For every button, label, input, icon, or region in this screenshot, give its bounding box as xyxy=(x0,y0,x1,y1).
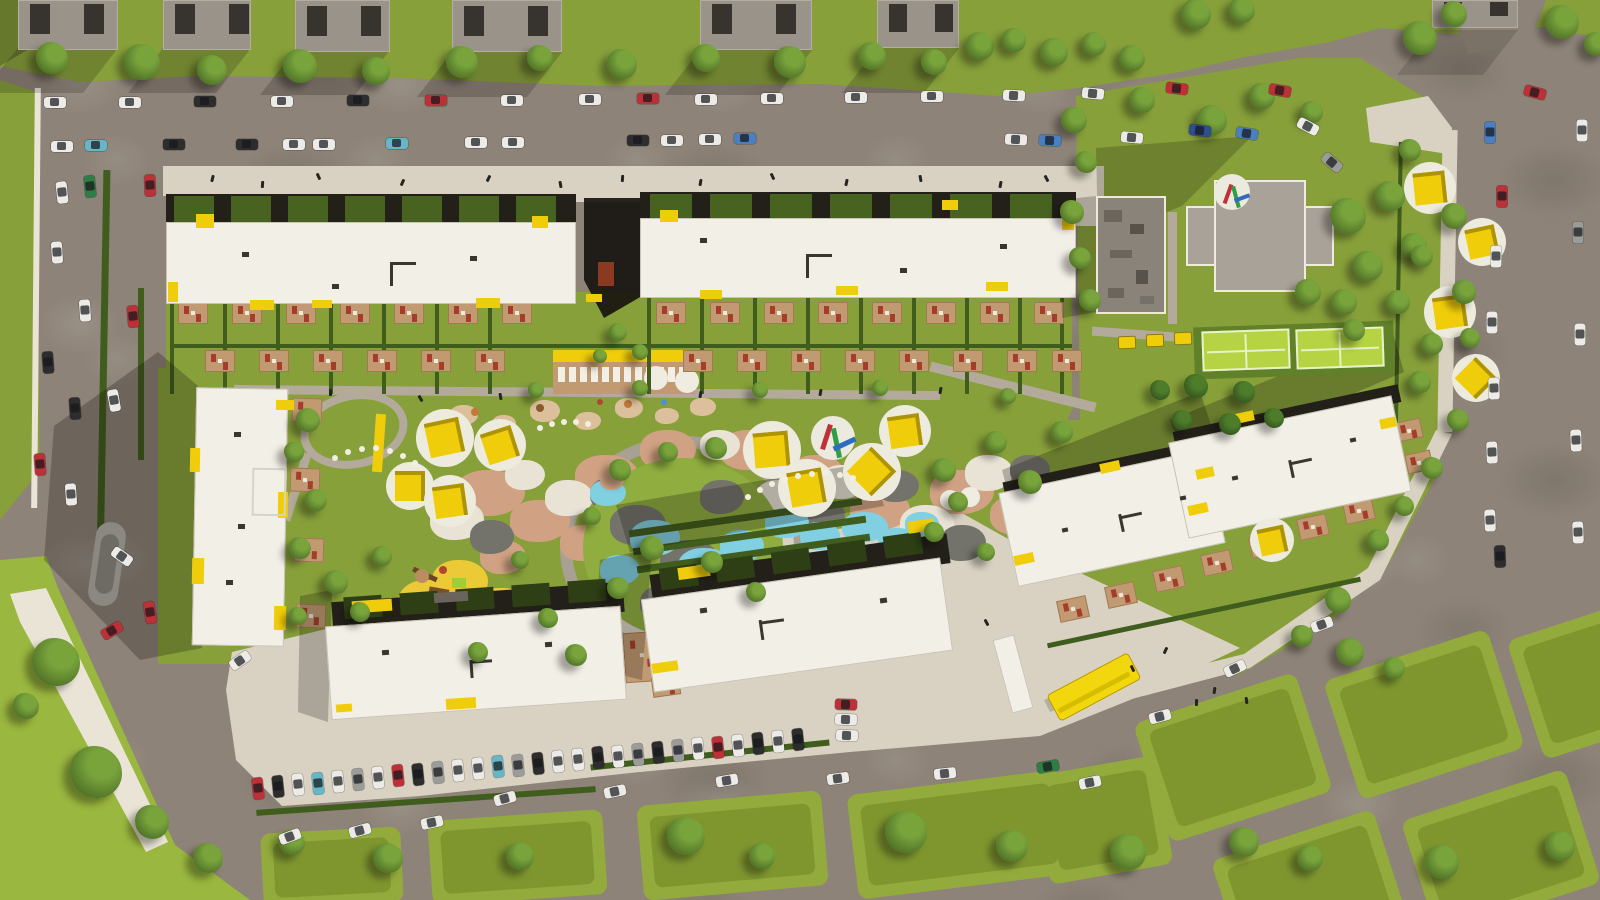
patio-furniture xyxy=(439,362,444,370)
car xyxy=(711,735,724,758)
tree xyxy=(1082,32,1106,56)
tower-building xyxy=(1216,208,1304,264)
car-window xyxy=(753,737,762,748)
tree xyxy=(632,344,648,360)
car-window xyxy=(773,735,782,746)
tree xyxy=(1264,408,1284,428)
tree xyxy=(506,842,534,870)
patio-table xyxy=(885,311,889,315)
residential-building xyxy=(196,214,214,228)
car xyxy=(283,139,305,150)
car-window xyxy=(70,402,79,412)
patio-furniture xyxy=(319,354,324,362)
car-window xyxy=(1498,191,1506,201)
car-window xyxy=(1488,446,1497,456)
roof-vent xyxy=(1490,2,1508,16)
residential-building xyxy=(382,650,389,655)
patio-furniture xyxy=(1076,608,1083,617)
tree xyxy=(296,408,320,432)
patio-furniture xyxy=(836,314,841,322)
car xyxy=(651,740,664,763)
car xyxy=(845,92,867,103)
patio xyxy=(205,350,235,372)
patio-furniture xyxy=(1172,578,1179,587)
tree xyxy=(1219,413,1241,435)
bench xyxy=(1174,332,1192,346)
residential-building xyxy=(511,583,550,608)
car xyxy=(835,713,857,725)
car-window xyxy=(373,771,382,782)
patio xyxy=(367,350,397,372)
patio-table xyxy=(831,311,835,315)
tree xyxy=(977,543,995,561)
terrace-hedge xyxy=(170,344,1072,348)
cabana xyxy=(416,409,473,466)
car-window xyxy=(667,136,677,144)
car xyxy=(1523,84,1547,100)
tree xyxy=(609,459,631,481)
patio-table xyxy=(696,359,700,363)
umbrella xyxy=(675,369,699,393)
car xyxy=(836,729,858,741)
car-window xyxy=(393,769,402,780)
stepping-stone xyxy=(549,421,555,427)
tree xyxy=(607,577,629,599)
car xyxy=(611,744,624,767)
tree xyxy=(70,746,122,798)
patio-table xyxy=(218,359,222,363)
car xyxy=(699,134,721,145)
tree xyxy=(1425,845,1459,879)
patio-furniture xyxy=(481,354,486,362)
car-window xyxy=(1529,87,1541,98)
residential-building xyxy=(567,579,606,604)
stepping-stone xyxy=(769,481,775,487)
bench xyxy=(1146,334,1164,348)
tree xyxy=(32,638,80,686)
patio-furniture xyxy=(331,362,336,370)
car-window xyxy=(573,753,582,764)
car-window xyxy=(426,817,437,827)
car-window xyxy=(721,775,732,785)
car xyxy=(501,95,523,106)
car-window xyxy=(253,782,262,793)
car xyxy=(715,773,739,788)
car-window xyxy=(1042,761,1053,771)
patio-furniture xyxy=(944,314,949,322)
residential-building xyxy=(226,580,233,585)
car-window xyxy=(609,786,620,796)
patio-furniture xyxy=(782,314,787,322)
car-window xyxy=(1578,125,1586,135)
car xyxy=(51,141,73,152)
stepping-stone xyxy=(332,455,338,461)
tree xyxy=(948,492,968,512)
cabana-canopy xyxy=(787,468,828,509)
sand-toy xyxy=(597,399,603,405)
patio-furniture xyxy=(292,306,297,314)
roof-vent xyxy=(84,4,104,34)
car xyxy=(1121,131,1144,144)
tree xyxy=(858,42,886,70)
person xyxy=(1244,696,1248,703)
car xyxy=(55,180,68,203)
stepping-stone xyxy=(823,470,829,476)
patio-furniture xyxy=(728,314,733,322)
residential-building xyxy=(446,697,477,710)
car xyxy=(531,751,544,774)
car-window xyxy=(277,97,287,105)
car xyxy=(1039,134,1062,146)
patio-table xyxy=(966,359,970,363)
tree xyxy=(1331,289,1357,315)
car-window xyxy=(1301,120,1314,132)
residential-building xyxy=(250,300,274,310)
car-window xyxy=(313,777,322,788)
patio-table xyxy=(723,311,727,315)
residential-building xyxy=(640,218,1076,298)
car xyxy=(491,754,504,777)
residential-building xyxy=(806,254,809,278)
cabana-canopy xyxy=(432,483,469,520)
patio-table xyxy=(272,359,276,363)
stepping-stone xyxy=(561,419,567,425)
car xyxy=(331,769,344,792)
car xyxy=(1165,81,1188,95)
patio xyxy=(421,350,451,372)
parcel-block xyxy=(1338,644,1510,786)
patio xyxy=(313,350,343,372)
tree xyxy=(1018,470,1042,494)
car-window xyxy=(1492,251,1500,261)
car xyxy=(465,137,487,148)
patio-table xyxy=(1214,561,1219,566)
patio-furniture xyxy=(311,551,316,559)
tree xyxy=(1336,638,1364,666)
tree xyxy=(527,45,553,71)
stepping-stone xyxy=(837,472,843,478)
tree xyxy=(885,811,927,853)
cabana xyxy=(879,405,932,458)
tree xyxy=(1181,0,1211,29)
tree xyxy=(36,42,68,74)
tree xyxy=(1452,280,1476,304)
car xyxy=(271,96,293,107)
play-equipment xyxy=(415,569,429,583)
car-window xyxy=(169,140,179,148)
car xyxy=(826,771,849,785)
patio-furniture xyxy=(373,354,378,362)
car-window xyxy=(473,762,482,773)
tree xyxy=(1060,200,1084,224)
tree xyxy=(921,49,947,75)
car xyxy=(571,747,584,770)
tree xyxy=(1421,457,1443,479)
tree xyxy=(373,843,403,873)
patio-furniture xyxy=(851,354,856,362)
tree xyxy=(1229,0,1255,23)
residential-building xyxy=(390,262,416,265)
car-window xyxy=(507,96,517,104)
residential-building xyxy=(402,196,442,222)
patio-table xyxy=(1020,359,1024,363)
patio-table xyxy=(461,311,465,315)
residential-building xyxy=(390,262,393,286)
tree xyxy=(446,46,478,78)
car-window xyxy=(1315,619,1327,630)
roof-vent xyxy=(30,4,50,34)
roof-vent xyxy=(889,4,907,32)
residential-building xyxy=(345,196,385,222)
car xyxy=(1486,441,1498,463)
patio-furniture xyxy=(890,314,895,322)
car xyxy=(51,241,64,264)
car-window xyxy=(333,775,342,786)
patio-furniture xyxy=(755,362,760,370)
tree xyxy=(996,830,1028,862)
roof-vent xyxy=(464,6,484,36)
patio-furniture xyxy=(304,314,309,322)
patio-furniture xyxy=(466,314,471,322)
patio xyxy=(394,302,424,324)
patio xyxy=(178,302,208,324)
residential-building xyxy=(836,286,858,295)
sidewalk xyxy=(575,166,641,202)
car xyxy=(42,351,55,374)
car-window xyxy=(508,138,518,146)
stepping-stone xyxy=(345,449,351,455)
car-window xyxy=(499,793,511,804)
tree xyxy=(609,323,627,341)
cabana xyxy=(1250,518,1294,562)
tree xyxy=(1399,139,1421,161)
car xyxy=(731,733,744,756)
tree xyxy=(1447,409,1469,431)
tree xyxy=(1441,203,1467,229)
car xyxy=(761,93,783,104)
car xyxy=(791,727,804,750)
car xyxy=(79,299,92,322)
parcel-block xyxy=(1148,687,1318,828)
residential-building xyxy=(1010,194,1052,218)
residential-building xyxy=(700,290,722,299)
car xyxy=(1003,89,1026,101)
tree xyxy=(1411,245,1433,267)
patio-furniture xyxy=(1063,603,1070,612)
tree xyxy=(1441,1,1467,27)
car-window xyxy=(128,310,137,321)
car xyxy=(371,765,384,788)
residential-building xyxy=(312,300,332,308)
residential-building xyxy=(700,608,708,614)
patio-furniture xyxy=(1412,429,1419,438)
car xyxy=(451,758,464,781)
patio xyxy=(872,302,902,324)
tree xyxy=(305,489,327,511)
patio xyxy=(1034,302,1064,324)
car-window xyxy=(713,741,722,752)
patio xyxy=(818,302,848,324)
patio-furniture xyxy=(797,354,802,362)
utility-building xyxy=(1104,210,1122,222)
residential-building xyxy=(942,200,958,210)
stepping-stone xyxy=(795,473,801,479)
car xyxy=(431,760,444,783)
patio-furniture xyxy=(1159,573,1166,582)
tree xyxy=(1079,289,1101,311)
tree xyxy=(1129,87,1155,113)
stepping-stone xyxy=(359,446,365,452)
tree xyxy=(593,349,607,363)
tree xyxy=(1119,45,1145,71)
patio-table xyxy=(1047,311,1051,315)
residential-building xyxy=(986,282,1008,291)
car xyxy=(194,96,216,107)
patio-furniture xyxy=(1400,424,1407,433)
tree xyxy=(1545,5,1579,39)
tree xyxy=(283,49,317,83)
car-window xyxy=(146,179,155,189)
residential-building xyxy=(459,196,499,222)
patio xyxy=(926,302,956,324)
tree xyxy=(1367,529,1389,551)
sun-deck xyxy=(602,367,609,382)
person xyxy=(558,180,562,187)
tree xyxy=(692,44,720,72)
car-window xyxy=(1171,83,1182,93)
car xyxy=(34,453,47,476)
cabana xyxy=(424,475,477,528)
residential-building xyxy=(880,598,888,604)
tree xyxy=(752,382,768,398)
person xyxy=(620,174,623,181)
car-window xyxy=(633,748,642,759)
car xyxy=(734,133,756,144)
tree xyxy=(565,644,587,666)
car-window xyxy=(392,139,402,147)
stepping-stone xyxy=(585,421,591,427)
patio-furniture xyxy=(265,354,270,362)
car-window xyxy=(593,751,602,762)
tree xyxy=(124,44,160,80)
tree xyxy=(324,570,348,594)
tree xyxy=(1383,657,1405,679)
stepping-stone xyxy=(782,476,788,482)
patio-furniture xyxy=(1025,362,1030,370)
tree xyxy=(985,431,1007,453)
patio-table xyxy=(245,311,249,315)
car xyxy=(511,753,524,776)
person xyxy=(698,390,702,397)
car-window xyxy=(43,356,52,366)
car-window xyxy=(66,488,75,498)
residential-building xyxy=(710,194,752,218)
patio-table xyxy=(993,311,997,315)
residential-building xyxy=(660,210,678,222)
tree xyxy=(1061,107,1087,133)
sun-deck xyxy=(569,367,576,382)
car xyxy=(671,738,684,761)
residential-building xyxy=(700,238,707,243)
car xyxy=(1573,221,1584,243)
car xyxy=(119,97,141,108)
stepping-stone xyxy=(412,460,418,466)
patio-table xyxy=(1118,593,1123,598)
car-window xyxy=(633,136,643,144)
person xyxy=(998,180,1002,187)
tree xyxy=(1421,333,1443,355)
stepping-stone xyxy=(537,425,543,431)
car xyxy=(551,749,564,772)
tree xyxy=(1075,151,1097,173)
roof-vent xyxy=(528,6,548,36)
patio-table xyxy=(326,359,330,363)
patio-furniture xyxy=(824,306,829,314)
tree xyxy=(1386,290,1410,314)
tree xyxy=(1394,496,1414,516)
car-window xyxy=(1574,227,1582,237)
residential-building xyxy=(830,194,872,218)
car xyxy=(1188,123,1211,137)
residential-building xyxy=(274,606,286,630)
tree xyxy=(1375,181,1405,211)
patio-furniture xyxy=(863,362,868,370)
residential-building xyxy=(1000,244,1007,249)
patio-table xyxy=(912,359,916,363)
car xyxy=(591,745,604,768)
car-window xyxy=(91,141,101,149)
patio-furniture xyxy=(520,314,525,322)
patio-furniture xyxy=(878,306,883,314)
residential-building xyxy=(470,256,477,261)
tree xyxy=(135,805,169,839)
patio-table xyxy=(434,359,438,363)
patio-furniture xyxy=(959,354,964,362)
car-window xyxy=(319,140,329,148)
car-window xyxy=(533,757,542,768)
roof-vent xyxy=(175,4,195,34)
tree xyxy=(1409,371,1431,393)
car-window xyxy=(109,394,119,405)
car-window xyxy=(693,742,702,753)
patio xyxy=(683,350,713,372)
car-window xyxy=(57,186,66,197)
roof-vent xyxy=(307,6,327,36)
tree xyxy=(1353,251,1383,281)
car xyxy=(1005,133,1028,145)
patio-furniture xyxy=(358,314,363,322)
person xyxy=(698,178,702,185)
tree xyxy=(362,57,390,85)
play-equipment xyxy=(452,578,466,588)
residential-building xyxy=(336,703,353,712)
residential-building xyxy=(890,194,932,218)
car-window xyxy=(740,134,750,142)
tree xyxy=(667,817,705,855)
utility-building xyxy=(1110,250,1132,258)
tree xyxy=(1150,380,1170,400)
patio xyxy=(340,302,370,324)
tree xyxy=(924,522,944,542)
patio-furniture xyxy=(662,306,667,314)
car-window xyxy=(653,746,662,757)
cabana-canopy xyxy=(887,413,924,450)
car xyxy=(425,95,447,106)
car-window xyxy=(701,95,711,103)
car xyxy=(1494,545,1506,567)
stepping-stone xyxy=(745,494,751,500)
residential-building xyxy=(231,196,271,222)
